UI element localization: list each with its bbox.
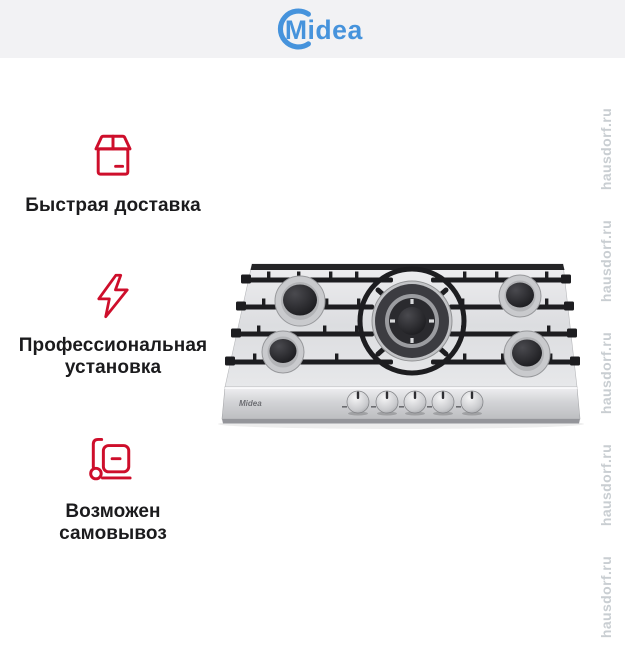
watermark-text: hausdorf.ru (598, 313, 614, 433)
feature-pickup: Возможен самовывоз (8, 432, 218, 546)
panel-brand-text: Midea (239, 399, 262, 408)
feature-fast-delivery: Быстрая доставка (13, 128, 213, 217)
package-icon (85, 128, 141, 182)
feature-label: Профессиональная установка (13, 335, 213, 380)
feature-label: Быстрая доставка (25, 195, 201, 217)
control-panel (222, 387, 580, 419)
burner-center-wok (372, 281, 452, 361)
midea-logo-text: Midea (284, 15, 362, 45)
product-promo-page: { "header": { "brand": "Midea", "brand_c… (0, 0, 625, 625)
lightning-icon (87, 270, 139, 322)
watermark-text: hausdorf.ru (598, 537, 614, 657)
handtruck-icon (85, 432, 141, 488)
watermark-text: hausdorf.ru (598, 201, 614, 321)
panel-bottom-edge (222, 419, 580, 424)
burner-bottom-right (504, 331, 550, 377)
watermark-text: hausdorf.ru (598, 89, 614, 209)
burner-top-right (499, 275, 541, 317)
header-band: Midea (0, 0, 625, 58)
panel-highlight (225, 387, 578, 389)
burner-bottom-left (262, 331, 304, 373)
product-image-gas-cooktop: Midea (205, 250, 597, 430)
midea-logo: Midea (249, 8, 377, 50)
feature-label: Возможен самовывоз (41, 501, 186, 546)
burner-top-left (275, 276, 325, 326)
watermark-text: hausdorf.ru (598, 425, 614, 545)
feature-pro-installation: Профессиональная установка (8, 270, 218, 380)
